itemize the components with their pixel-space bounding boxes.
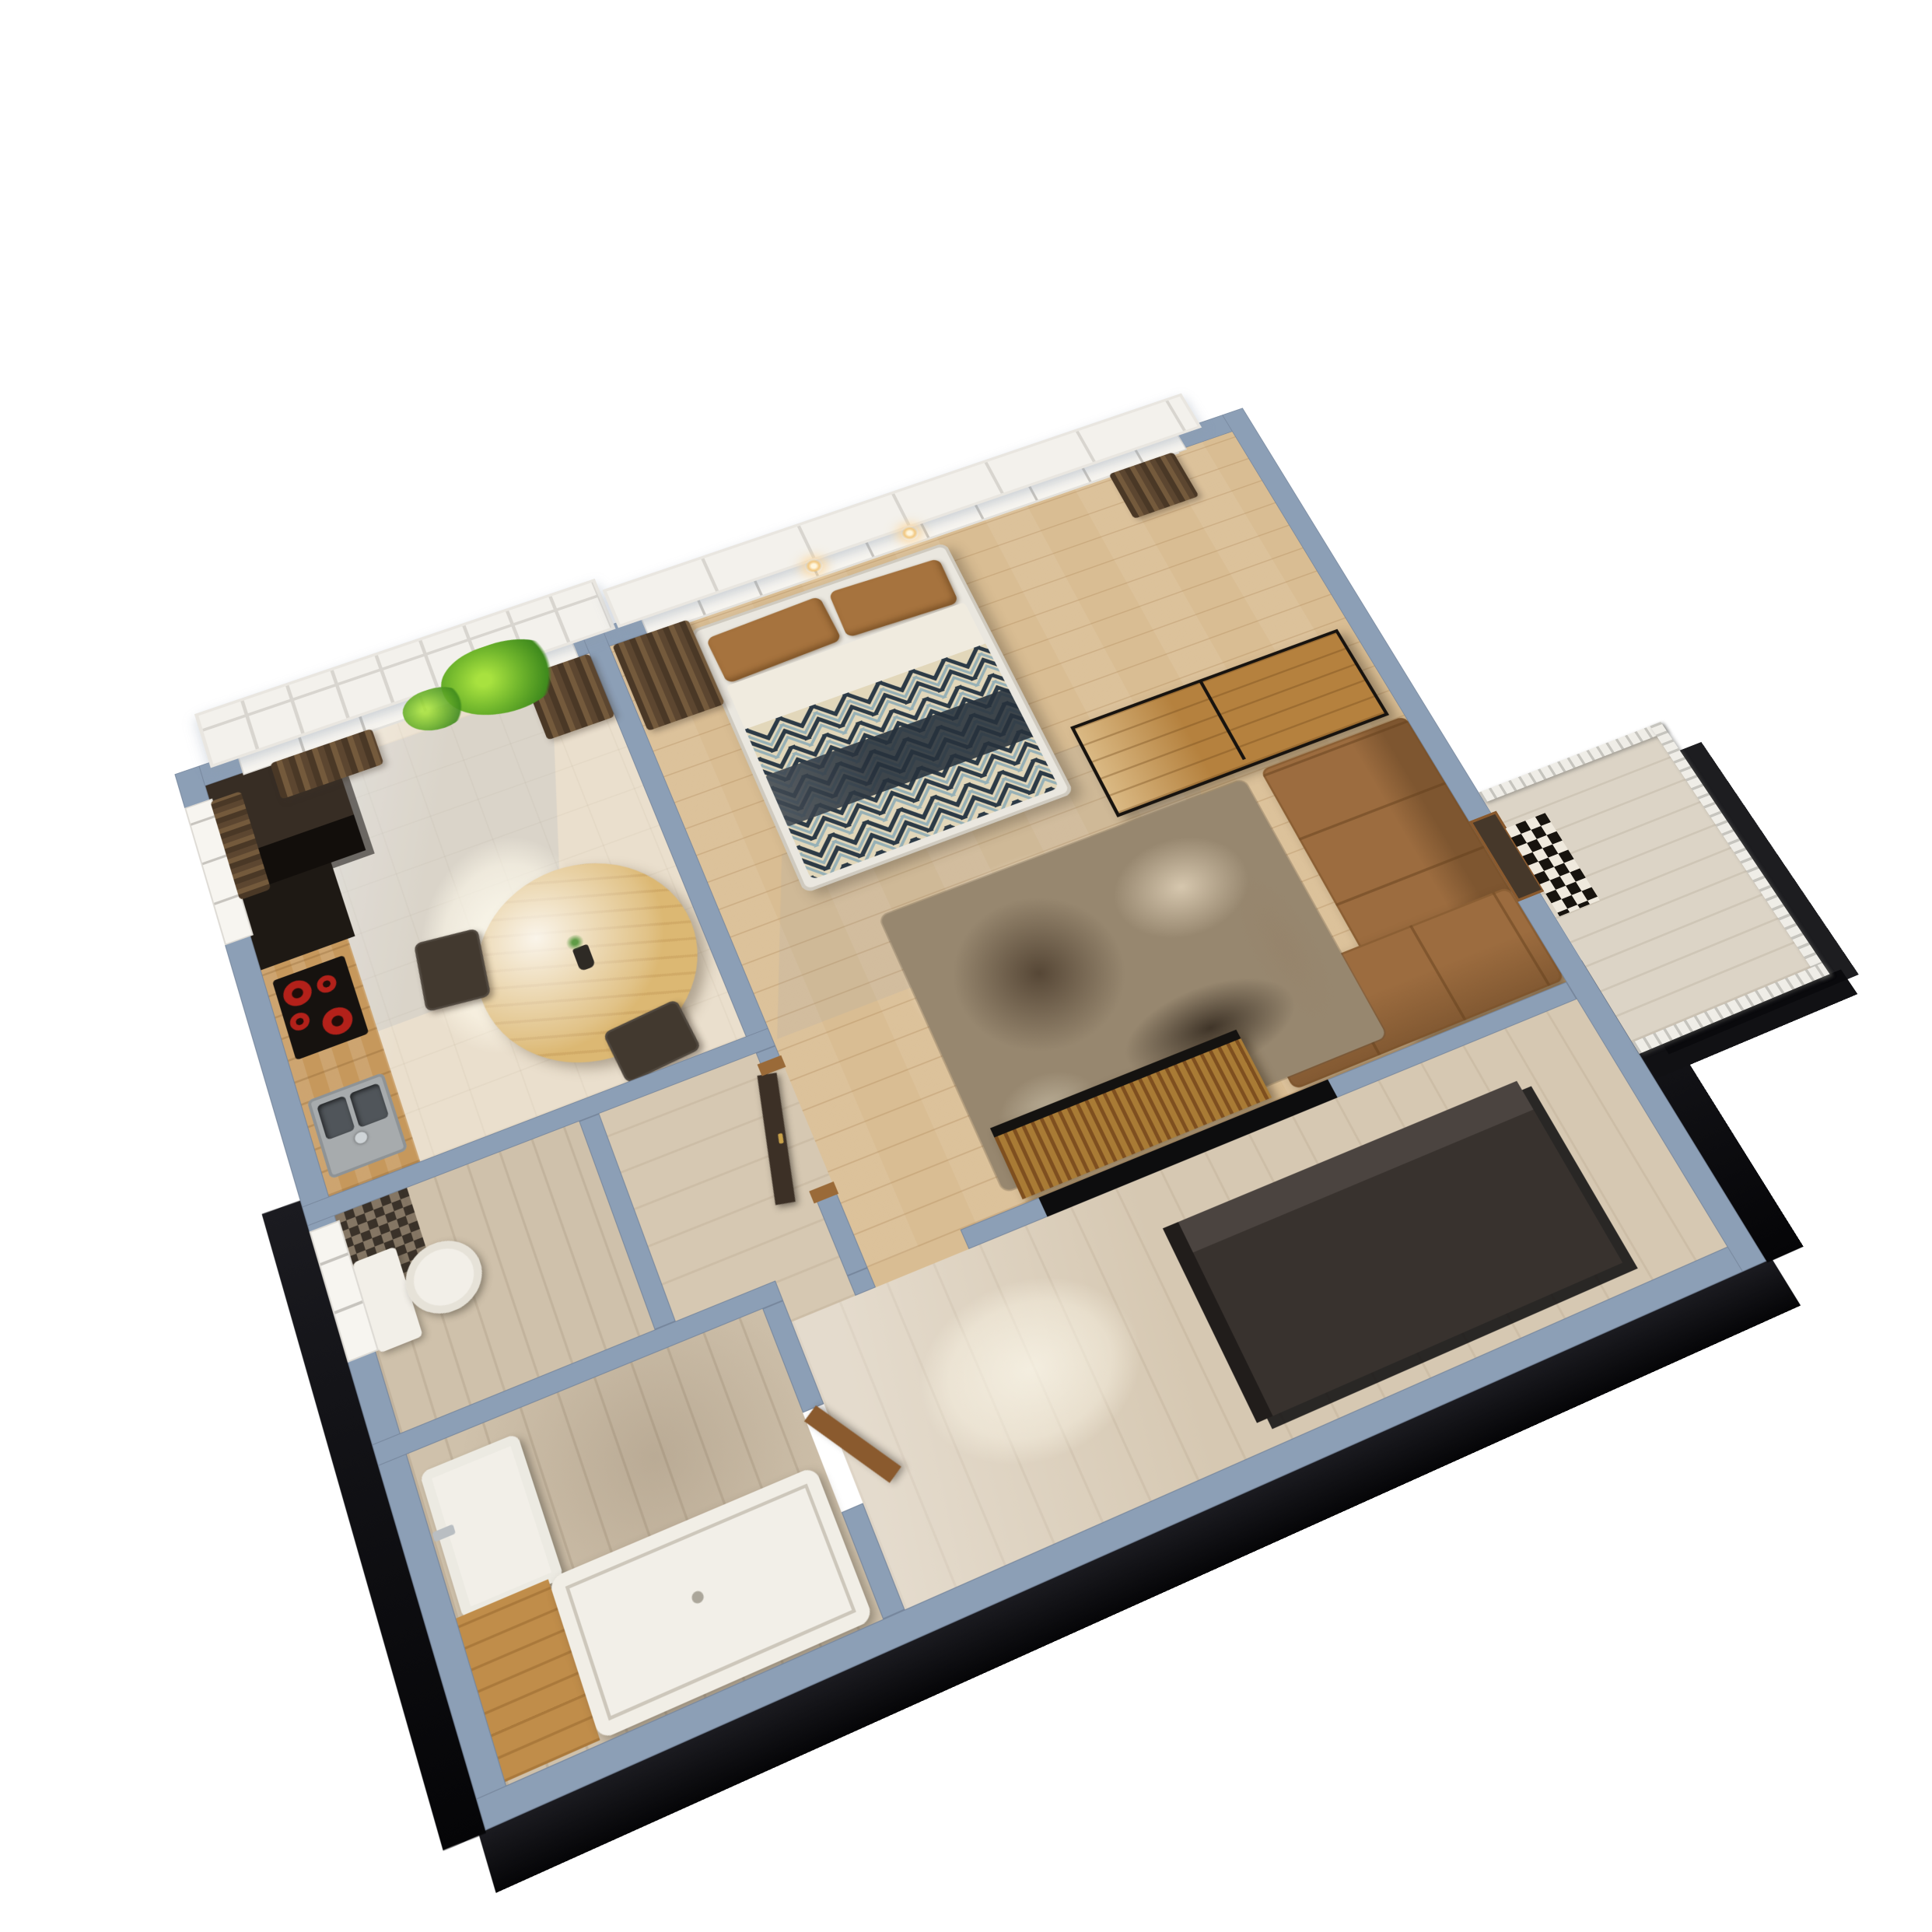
render-scene: [0, 0, 1932, 1932]
apartment: [174, 408, 1766, 1830]
floor-plan: [114, 304, 1932, 1889]
